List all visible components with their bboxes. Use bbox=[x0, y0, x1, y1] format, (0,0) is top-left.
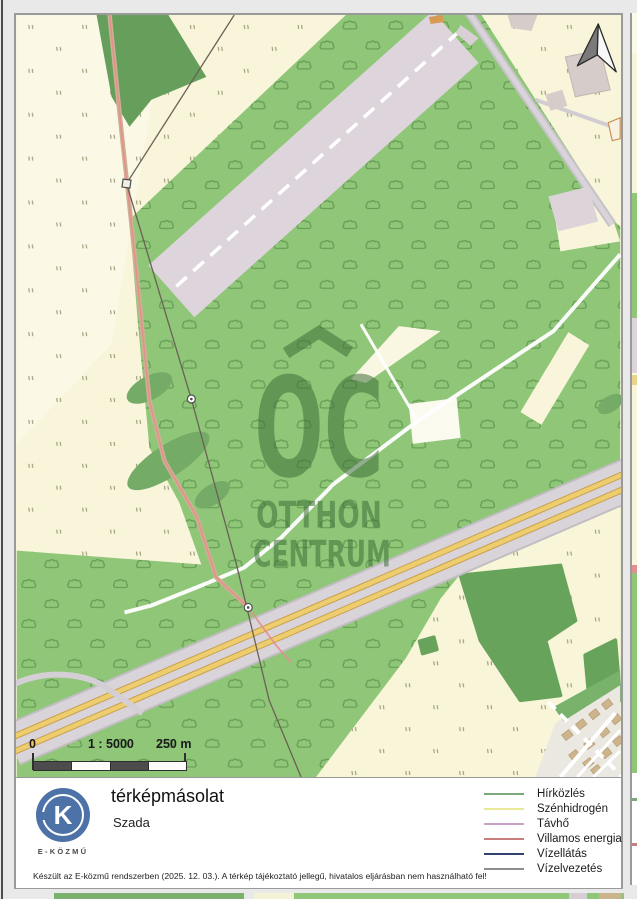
map-canvas: OC OTTHON CENTRUM bbox=[16, 15, 621, 777]
legend-label: Távhő bbox=[537, 818, 569, 830]
legend-line-swatch bbox=[484, 793, 524, 795]
legend-label: Vízellátás bbox=[537, 848, 587, 860]
map-footer: K E-KÖZMŰ térképmásolat Szada Hírközlés … bbox=[16, 777, 621, 888]
legend-line-swatch bbox=[484, 823, 524, 825]
sliver-fragment bbox=[632, 773, 637, 885]
sliver-fragment bbox=[632, 318, 637, 373]
watermark-line1: OTTHON bbox=[256, 494, 382, 537]
logo-letter: K bbox=[36, 788, 90, 842]
map-area: OC OTTHON CENTRUM 0 1 : 5000 250 m bbox=[16, 15, 621, 777]
watermark-initials: OC bbox=[254, 349, 384, 509]
sliver-fragment bbox=[54, 893, 244, 899]
legend-line-swatch bbox=[484, 838, 524, 840]
legend-item: Villamos energia bbox=[484, 831, 622, 846]
sliver-fragment bbox=[632, 798, 637, 801]
legend-line-swatch bbox=[484, 853, 524, 855]
scale-segment bbox=[71, 762, 109, 770]
sliver-fragment bbox=[254, 893, 294, 899]
ekozmu-logo-icon: K bbox=[36, 788, 90, 842]
scale-segment bbox=[148, 762, 186, 770]
legend-label: Hírközlés bbox=[537, 788, 585, 800]
sliver-fragment bbox=[632, 375, 637, 385]
legend-line-swatch bbox=[484, 868, 524, 870]
page-subtitle: Szada bbox=[113, 815, 150, 830]
legend-item: Távhő bbox=[484, 816, 622, 831]
legend-label: Villamos energia bbox=[537, 833, 622, 845]
sliver-fragment bbox=[632, 843, 637, 846]
sliver-fragment bbox=[632, 573, 637, 773]
scale-distance-label: 250 m bbox=[156, 737, 191, 751]
ekozmu-logo: K E-KÖZMŰ bbox=[32, 788, 94, 856]
legend-line-swatch bbox=[484, 808, 524, 810]
scale-zero-label: 0 bbox=[29, 737, 36, 751]
logo-caption: E-KÖZMŰ bbox=[32, 847, 94, 856]
sliver-fragment bbox=[632, 565, 637, 573]
next-page-right-sliver bbox=[630, 13, 637, 885]
scale-bar-segments bbox=[33, 761, 187, 771]
sliver-fragment bbox=[632, 53, 637, 193]
legend-item: Hírközlés bbox=[484, 786, 622, 801]
legend: Hírközlés Szénhidrogén Távhő Villamos en… bbox=[484, 786, 622, 876]
scale-ratio-label: 1 : 5000 bbox=[88, 737, 134, 751]
legend-item: Szénhidrogén bbox=[484, 801, 622, 816]
sliver-fragment bbox=[599, 893, 621, 899]
watermark-line2: CENTRUM bbox=[253, 533, 391, 576]
legend-label: Szénhidrogén bbox=[537, 803, 608, 815]
viewer-left-edge bbox=[1, 0, 3, 899]
sliver-fragment bbox=[569, 893, 587, 899]
sliver-fragment bbox=[632, 193, 637, 318]
sliver-fragment bbox=[632, 385, 637, 565]
scale-segment bbox=[110, 762, 148, 770]
map-document-page: OC OTTHON CENTRUM 0 1 : 5000 250 m bbox=[14, 13, 623, 889]
disclaimer-text: Készült az E-közmű rendszerben (2025. 12… bbox=[33, 871, 603, 881]
next-page-bottom-sliver bbox=[14, 892, 623, 899]
legend-item: Vízellátás bbox=[484, 846, 622, 861]
scale-segment bbox=[34, 762, 71, 770]
page-title: térképmásolat bbox=[111, 786, 224, 807]
watermark: OC OTTHON CENTRUM bbox=[253, 332, 391, 575]
